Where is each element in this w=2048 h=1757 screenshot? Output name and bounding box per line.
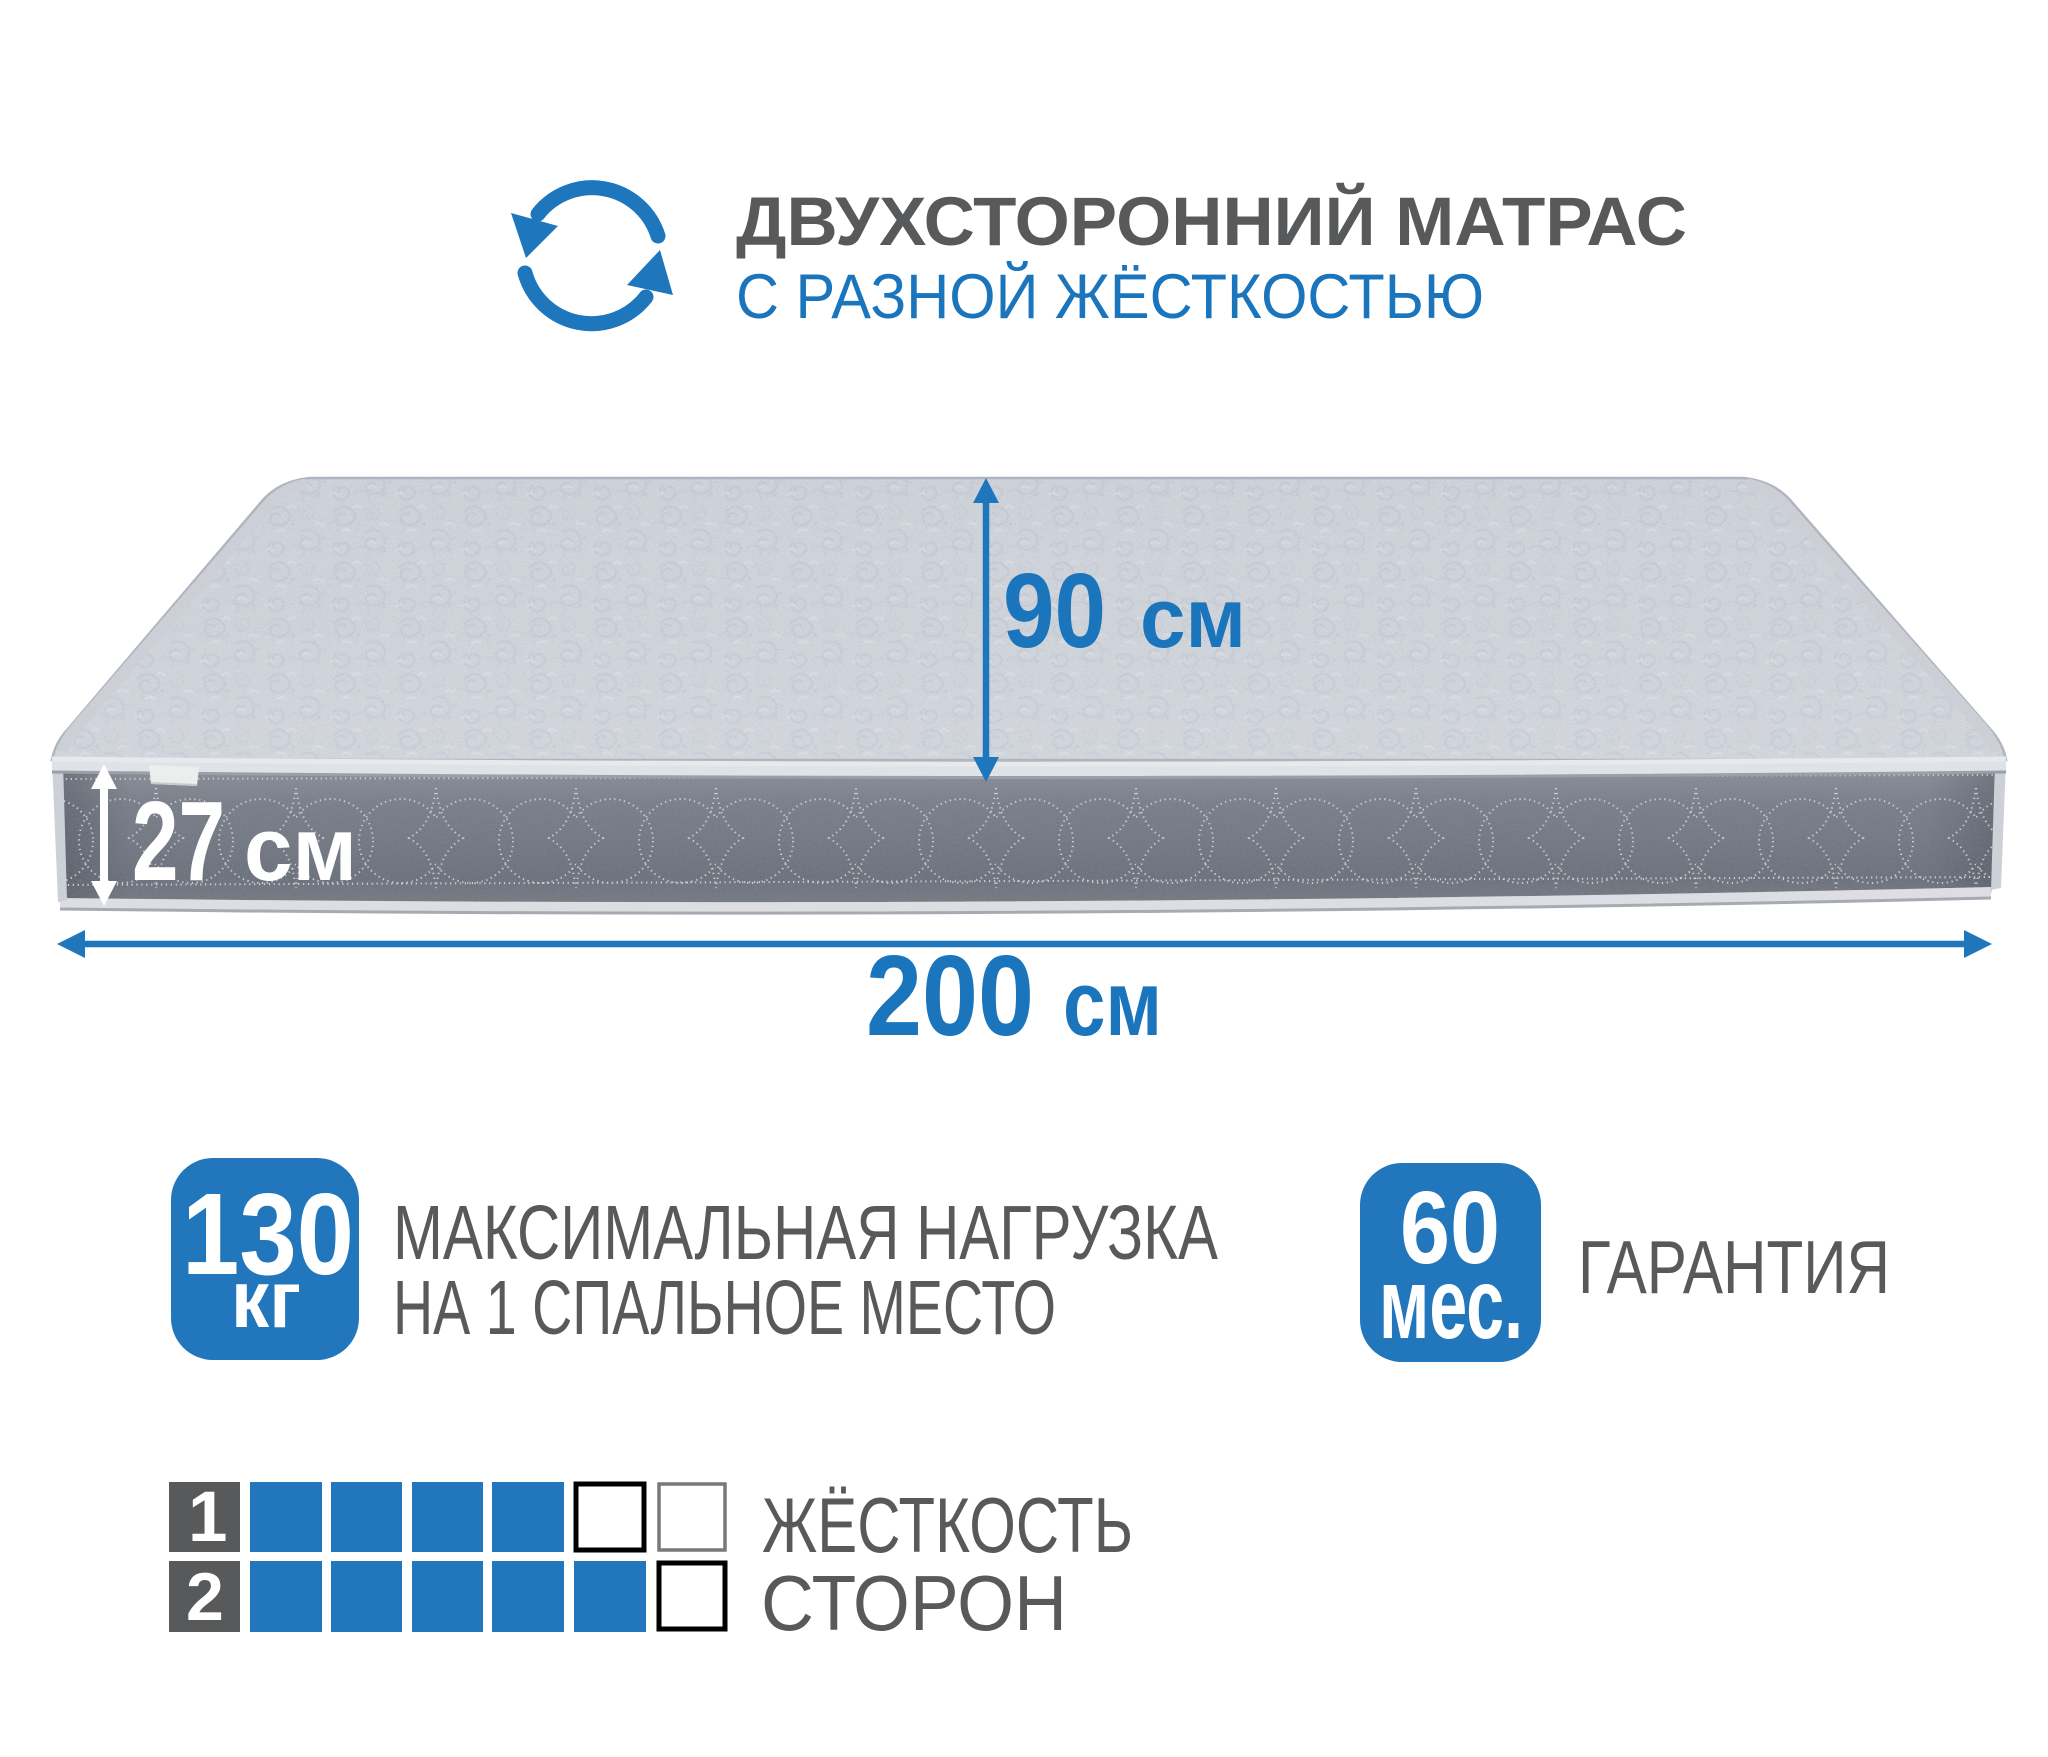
svg-text:ДВУХСТОРОННИЙ МАТРАС: ДВУХСТОРОННИЙ МАТРАС: [736, 182, 1687, 260]
svg-text:ЖЁСТКОСТЬ: ЖЁСТКОСТЬ: [762, 1481, 1133, 1569]
svg-text:см: см: [1063, 953, 1162, 1055]
svg-text:см: см: [1140, 571, 1246, 665]
svg-text:С РАЗНОЙ ЖЁСТКОСТЬЮ: С РАЗНОЙ ЖЁСТКОСТЬЮ: [736, 261, 1484, 332]
svg-text:27: 27: [132, 778, 225, 904]
svg-text:90: 90: [1003, 552, 1106, 670]
svg-text:ГАРАНТИЯ: ГАРАНТИЯ: [1578, 1225, 1890, 1309]
svg-text:см: см: [244, 800, 357, 900]
svg-text:СТОРОН: СТОРОН: [761, 1559, 1067, 1647]
svg-text:МАКСИМАЛЬНАЯ НАГРУЗКА: МАКСИМАЛЬНАЯ НАГРУЗКА: [393, 1190, 1218, 1276]
svg-text:НА 1 СПАЛЬНОЕ МЕСТО: НА 1 СПАЛЬНОЕ МЕСТО: [393, 1265, 1056, 1351]
svg-text:2: 2: [186, 1559, 224, 1635]
svg-text:200: 200: [866, 933, 1034, 1060]
svg-text:1: 1: [188, 1478, 228, 1557]
svg-text:кг: кг: [231, 1255, 301, 1345]
svg-text:мес.: мес.: [1379, 1248, 1523, 1360]
